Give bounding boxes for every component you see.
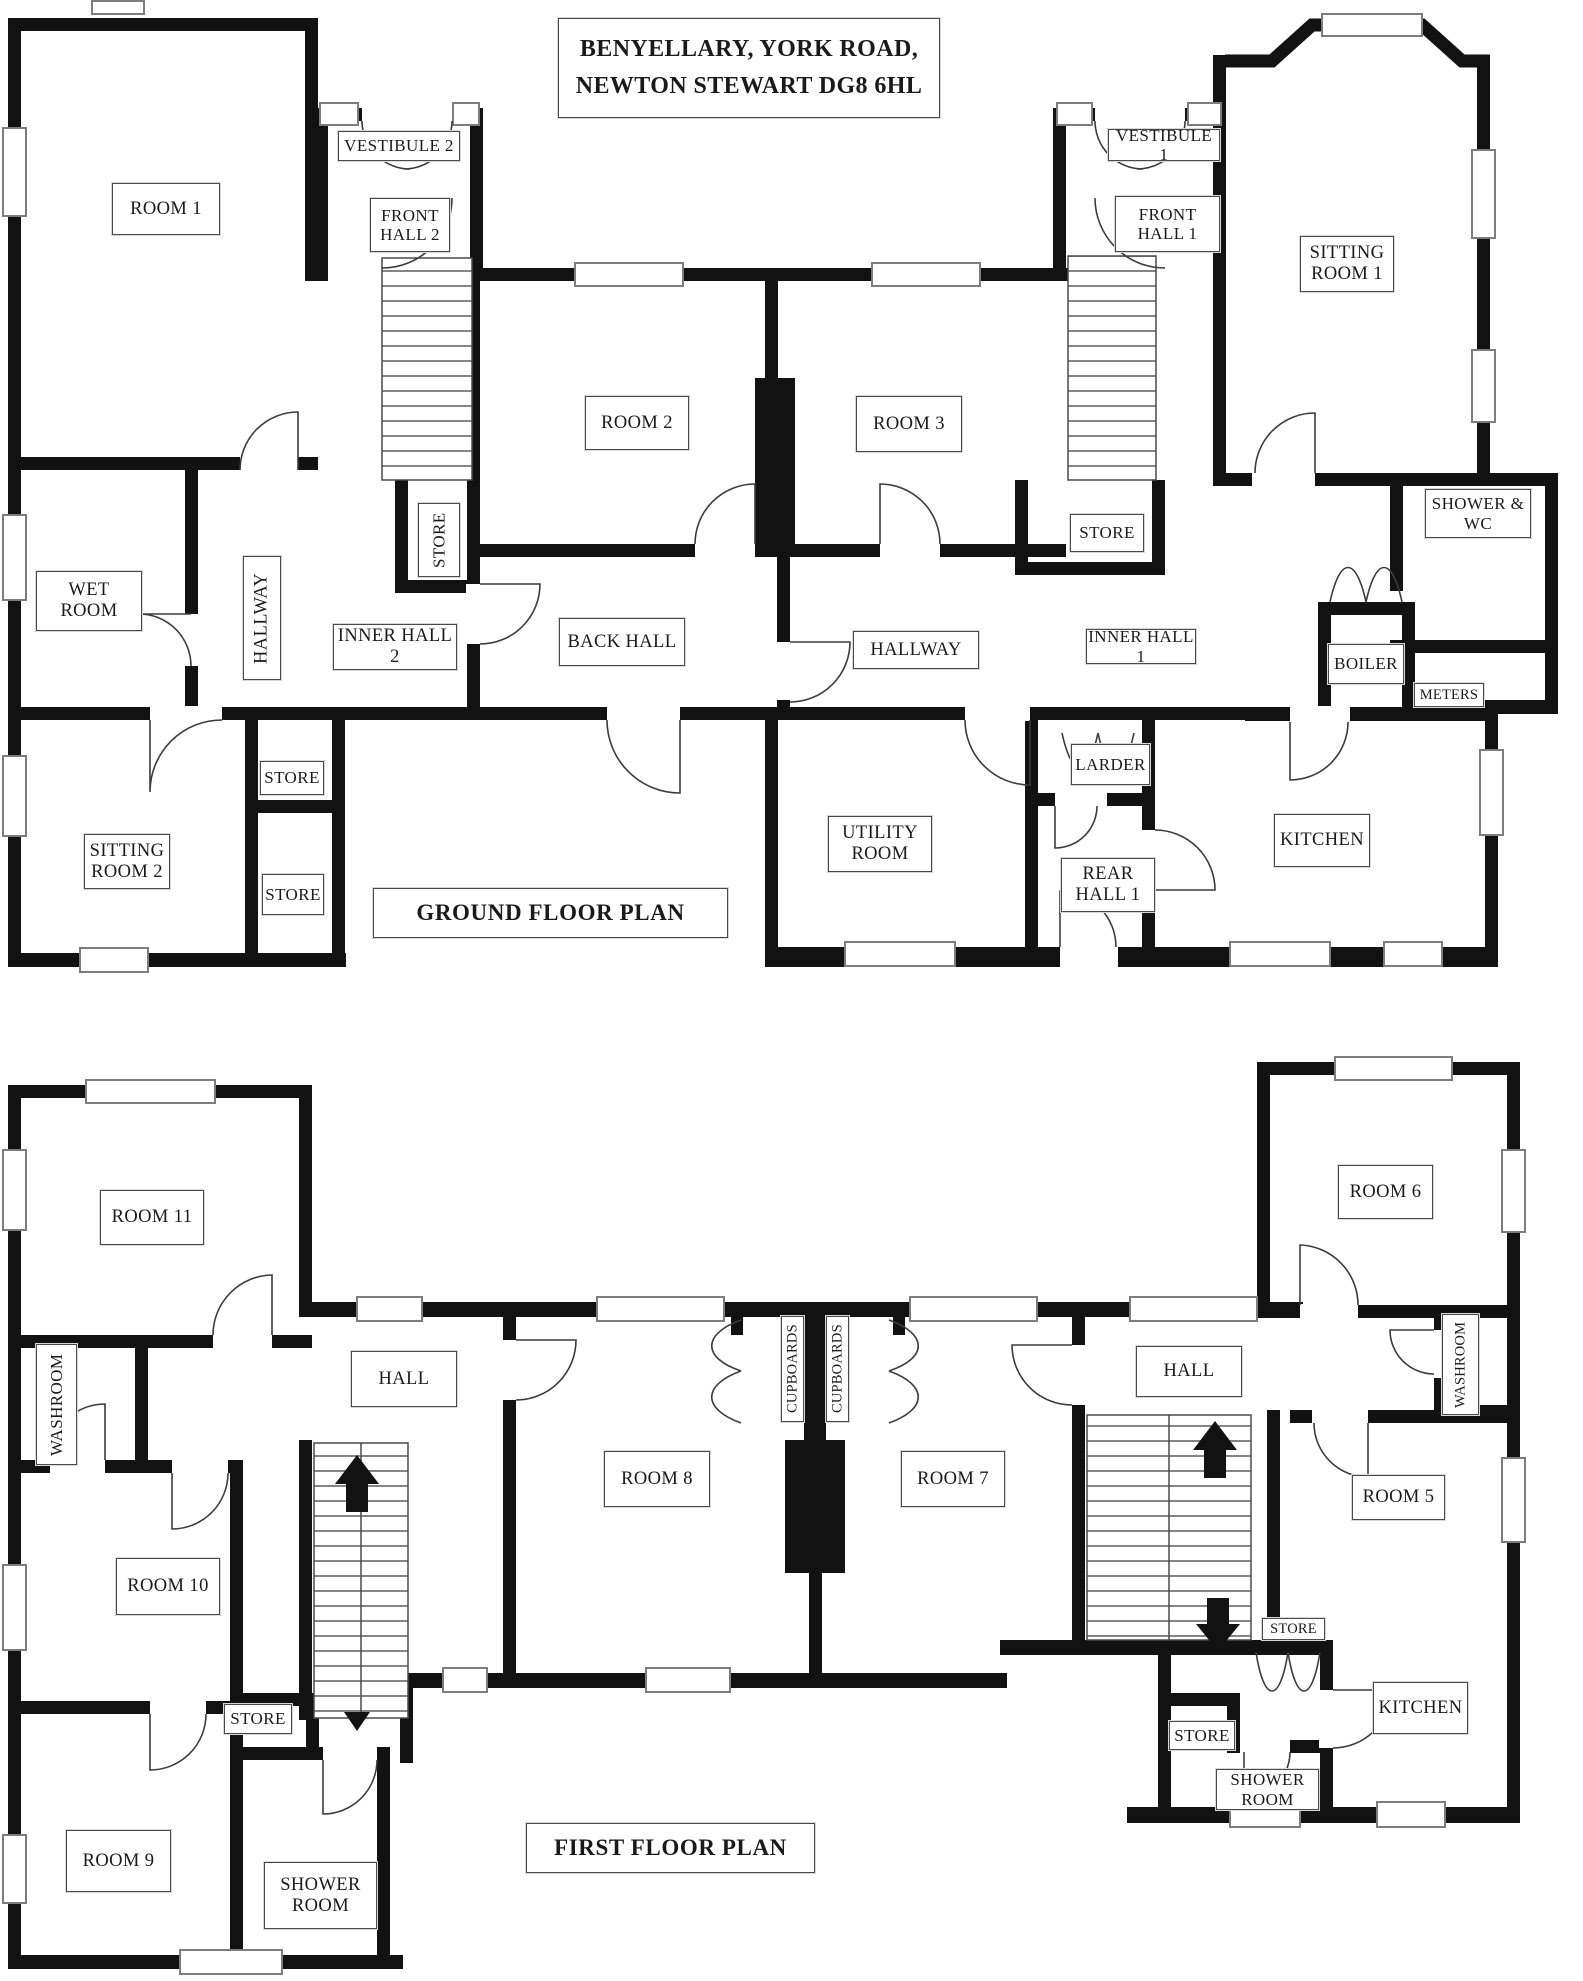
room-label-shower-room-right: SHOWER ROOM <box>1216 1769 1319 1810</box>
room-label-kitchen-ground: KITCHEN <box>1274 814 1370 867</box>
room-label-back-hall: BACK HALL <box>559 618 685 666</box>
room-label-room2: ROOM 2 <box>585 396 689 450</box>
room-label-washroom-right: WASHROOM <box>1442 1314 1479 1415</box>
room-label-store-right-upper: STORE <box>1262 1618 1325 1640</box>
room-label-kitchen-first: KITCHEN <box>1373 1682 1468 1734</box>
address-line-2: NEWTON STEWART DG8 6HL <box>576 68 923 105</box>
floor-plan-drawing <box>0 0 1583 1981</box>
room-label-washroom-left: WASHROOM <box>36 1344 77 1465</box>
room-label-vestibule2: VESTIBULE 2 <box>338 131 460 161</box>
room-label-room5: ROOM 5 <box>1352 1475 1445 1520</box>
ground-floor-caption: GROUND FLOOR PLAN <box>373 888 728 938</box>
room-label-front-hall2: FRONT HALL 2 <box>370 198 450 252</box>
room-label-shower-room-left: SHOWER ROOM <box>264 1862 377 1929</box>
room-label-room10: ROOM 10 <box>116 1558 220 1615</box>
room-label-hallway-right: HALLWAY <box>853 631 979 669</box>
room-label-store-left: STORE <box>224 1704 292 1734</box>
address-title: BENYELLARY, YORK ROAD, NEWTON STEWART DG… <box>558 18 940 118</box>
room-label-cupboards-a: CUPBOARDS <box>781 1316 804 1422</box>
room-label-cupboards-b: CUPBOARDS <box>826 1316 849 1422</box>
room-label-store-stairs1: STORE <box>1070 514 1144 552</box>
room-label-boiler: BOILER <box>1328 644 1404 684</box>
first-floor-chimney <box>785 1440 845 1573</box>
address-line-1: BENYELLARY, YORK ROAD, <box>580 31 918 68</box>
room-label-store-b: STORE <box>262 874 324 915</box>
room-label-room6: ROOM 6 <box>1338 1165 1433 1219</box>
room-label-utility-room: UTILITY ROOM <box>828 816 932 872</box>
first-floor-caption: FIRST FLOOR PLAN <box>526 1823 815 1873</box>
room-label-hallway-left: HALLWAY <box>243 556 281 680</box>
room-label-store-a: STORE <box>260 761 324 795</box>
room-label-room11: ROOM 11 <box>100 1190 204 1245</box>
room-label-front-hall1: FRONT HALL 1 <box>1115 196 1220 252</box>
room-label-room9: ROOM 9 <box>66 1830 171 1892</box>
room-label-sitting-room1: SITTING ROOM 1 <box>1300 236 1394 292</box>
room-label-room8: ROOM 8 <box>604 1451 710 1507</box>
room-label-hall-left: HALL <box>351 1351 457 1407</box>
floorplan-page: { "title": { "line1": "BENYELLARY, YORK … <box>0 0 1583 1981</box>
room-label-larder: LARDER <box>1071 744 1150 785</box>
room-label-store-right-lower: STORE <box>1169 1721 1235 1750</box>
room-label-inner-hall2: INNER HALL 2 <box>333 624 457 670</box>
room-label-sitting-room2: SITTING ROOM 2 <box>84 834 170 889</box>
ground-floor-chimney <box>755 378 795 548</box>
room-label-shower-wc: SHOWER & WC <box>1425 489 1531 538</box>
room-label-vestibule1: VESTIBULE 1 <box>1108 129 1220 161</box>
room-label-wet-room: WET ROOM <box>36 571 142 631</box>
room-label-room1: ROOM 1 <box>112 183 220 235</box>
room-label-rear-hall1: REAR HALL 1 <box>1061 858 1155 912</box>
room-label-meters: METERS <box>1414 683 1484 707</box>
room-label-store-stairs2: STORE <box>418 503 460 577</box>
room-label-room3: ROOM 3 <box>856 396 962 452</box>
room-label-inner-hall1: INNER HALL 1 <box>1086 629 1196 664</box>
room-label-hall-right: HALL <box>1136 1346 1242 1397</box>
room-label-room7: ROOM 7 <box>901 1451 1005 1507</box>
